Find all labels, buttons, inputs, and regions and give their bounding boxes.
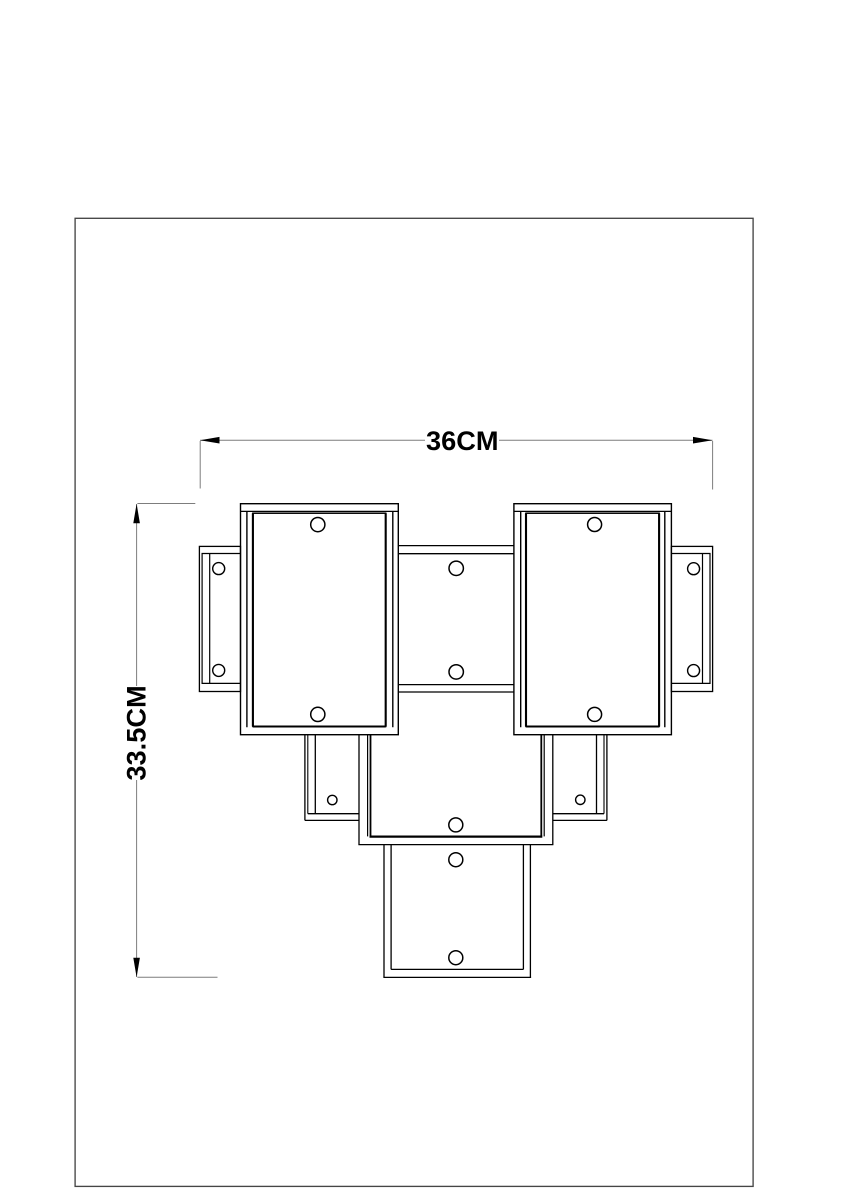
svg-text:36CM: 36CM [426, 425, 499, 456]
svg-text:33.5CM: 33.5CM [121, 685, 152, 780]
